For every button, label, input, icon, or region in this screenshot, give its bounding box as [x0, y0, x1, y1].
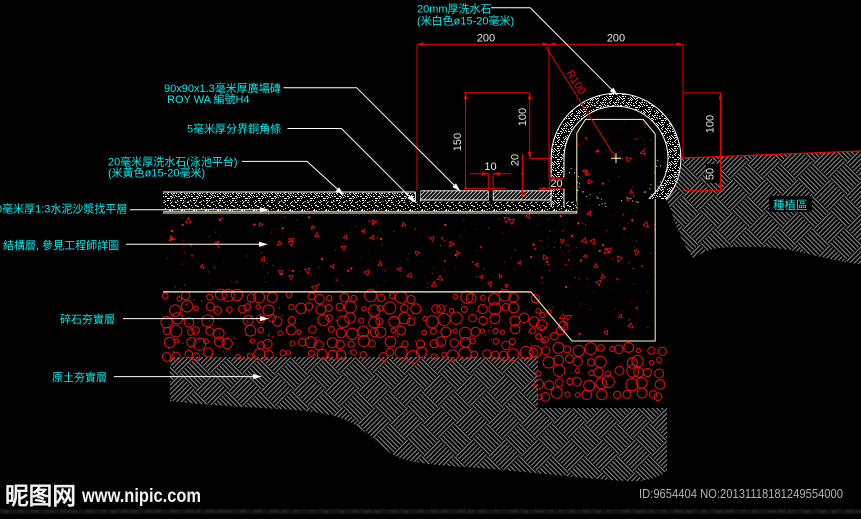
svg-text:結構層, 參見工程師詳圖: 結構層, 參見工程師詳圖: [3, 238, 119, 252]
svg-text:150: 150: [452, 133, 464, 151]
svg-text:20: 20: [550, 178, 562, 190]
svg-text:(米白色ø15-20毫米): (米白色ø15-20毫米): [417, 14, 514, 28]
svg-text:50: 50: [705, 168, 717, 180]
svg-text:100: 100: [517, 108, 529, 126]
svg-text:ID:9654404 NO:2013111818124955: ID:9654404 NO:20131118181249554000: [639, 487, 843, 501]
svg-text:20mm厚洗水石: 20mm厚洗水石: [417, 3, 492, 16]
svg-text:200: 200: [607, 33, 625, 45]
svg-text:90x90x1.3毫米厚廣場磚: 90x90x1.3毫米厚廣場磚: [164, 81, 281, 95]
svg-text:原土夯實層: 原土夯實層: [52, 370, 107, 384]
svg-text:20毫米厚洗水石(泳池平台): 20毫米厚洗水石(泳池平台): [108, 155, 238, 169]
svg-text:5毫米厚分界銅角條: 5毫米厚分界銅角條: [187, 122, 281, 136]
svg-text:www.nipic.com: www.nipic.com: [81, 485, 201, 507]
svg-text:昵图网: 昵图网: [5, 483, 76, 510]
svg-text:200: 200: [477, 33, 495, 45]
svg-text:0毫米厚1:3水泥沙漿找平層: 0毫米厚1:3水泥沙漿找平層: [0, 202, 127, 216]
svg-text:(米黃色ø15-20毫米): (米黃色ø15-20毫米): [108, 166, 205, 180]
svg-text:碎石夯實層: 碎石夯實層: [60, 312, 115, 326]
svg-text:10: 10: [484, 161, 496, 173]
svg-text:100: 100: [705, 115, 717, 133]
svg-text:ROY WA 編號H4: ROY WA 編號H4: [167, 92, 250, 106]
svg-text:20: 20: [510, 154, 522, 166]
svg-text:種植區: 種植區: [773, 198, 808, 212]
